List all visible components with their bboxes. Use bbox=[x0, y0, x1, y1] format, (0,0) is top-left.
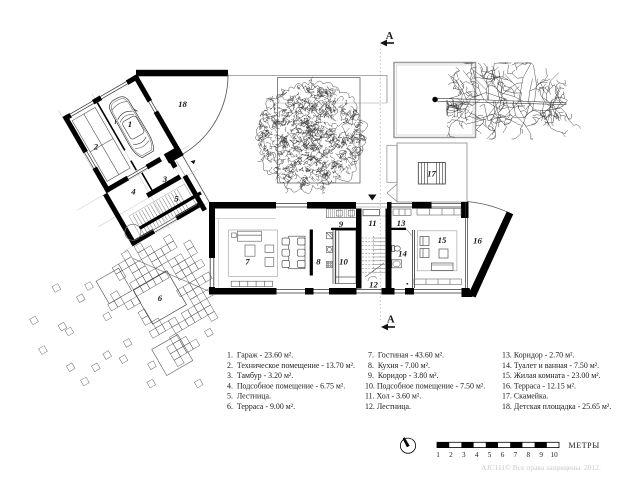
svg-text:8: 8 bbox=[527, 451, 531, 459]
svg-text:6. Терраса - 9.00 м².: 6. Терраса - 9.00 м². bbox=[227, 402, 295, 411]
svg-text:9: 9 bbox=[339, 219, 344, 229]
svg-text:17: 17 bbox=[427, 169, 436, 179]
svg-text:5: 5 bbox=[174, 194, 179, 204]
svg-text:3: 3 bbox=[162, 174, 168, 184]
svg-text:16. Терраса - 12.15 м².: 16. Терраса - 12.15 м². bbox=[502, 381, 576, 390]
svg-text:2. Техническое помещение - 13: 2. Техническое помещение - 13.70 м². bbox=[227, 361, 355, 370]
svg-text:15: 15 bbox=[438, 235, 447, 245]
svg-text:3. Тамбур - 3.20 м².: 3. Тамбур - 3.20 м². bbox=[227, 371, 293, 380]
svg-text:18. Детская площадка - 25.65 м: 18. Детская площадка - 25.65 м². bbox=[502, 402, 611, 411]
svg-text:10: 10 bbox=[551, 451, 559, 459]
svg-text:8: 8 bbox=[316, 257, 321, 267]
svg-text:12. Лестница.: 12. Лестница. bbox=[365, 402, 411, 411]
svg-text:9. Коридор - 3.80 м².: 9. Коридор - 3.80 м². bbox=[368, 371, 438, 380]
svg-text:2: 2 bbox=[449, 451, 453, 459]
svg-text:12: 12 bbox=[369, 280, 378, 290]
svg-text:9: 9 bbox=[539, 451, 543, 459]
svg-text:7: 7 bbox=[245, 257, 250, 267]
svg-text:15. Жилая комната - 23.00 м².: 15. Жилая комната - 23.00 м². bbox=[502, 371, 601, 380]
svg-text:17. Скамейка.: 17. Скамейка. bbox=[502, 392, 548, 401]
svg-text:11: 11 bbox=[368, 218, 376, 228]
svg-text:5. Лестница.: 5. Лестница. bbox=[227, 392, 271, 401]
svg-text:1: 1 bbox=[128, 119, 132, 129]
svg-text:4: 4 bbox=[475, 451, 479, 459]
svg-text:5: 5 bbox=[488, 451, 492, 459]
svg-text:18: 18 bbox=[178, 99, 187, 109]
svg-text:11. Хол - 3.60 м².: 11. Хол - 3.60 м². bbox=[365, 392, 421, 401]
svg-text:8. Кухня - 7.00 м².: 8. Кухня - 7.00 м². bbox=[368, 361, 430, 370]
svg-text:14. Туалет и ванная - 7.50 м².: 14. Туалет и ванная - 7.50 м². bbox=[502, 361, 599, 370]
svg-text:13. Коридор - 2.70 м².: 13. Коридор - 2.70 м². bbox=[502, 351, 574, 360]
svg-text:4: 4 bbox=[130, 187, 136, 197]
svg-text:16: 16 bbox=[473, 236, 482, 246]
svg-text:2: 2 bbox=[93, 142, 99, 152]
svg-text:3: 3 bbox=[462, 451, 466, 459]
svg-text:А: А bbox=[387, 315, 395, 326]
svg-text:1: 1 bbox=[436, 451, 440, 459]
svg-text:13: 13 bbox=[397, 218, 406, 228]
svg-text:7: 7 bbox=[514, 451, 518, 459]
svg-text:10. Подсобное помещение - 7.50: 10. Подсобное помещение - 7.50 м². bbox=[365, 381, 485, 390]
svg-text:7. Гостиная - 43.60 м².: 7. Гостиная - 43.60 м². bbox=[368, 351, 444, 360]
svg-text:14: 14 bbox=[398, 249, 407, 259]
svg-text:1. Гараж - 23.60 м².: 1. Гараж - 23.60 м². bbox=[227, 351, 293, 360]
svg-text:6: 6 bbox=[501, 451, 505, 459]
svg-text:6: 6 bbox=[158, 293, 163, 303]
svg-text:AJC111© Все права защищены. 20: AJC111© Все права защищены. 2012. bbox=[481, 463, 601, 472]
svg-text:4. Подсобное помещение - 6.75: 4. Подсобное помещение - 6.75 м². bbox=[227, 381, 345, 390]
svg-text:10: 10 bbox=[339, 257, 348, 267]
svg-text:МЕТРЫ: МЕТРЫ bbox=[569, 441, 600, 450]
